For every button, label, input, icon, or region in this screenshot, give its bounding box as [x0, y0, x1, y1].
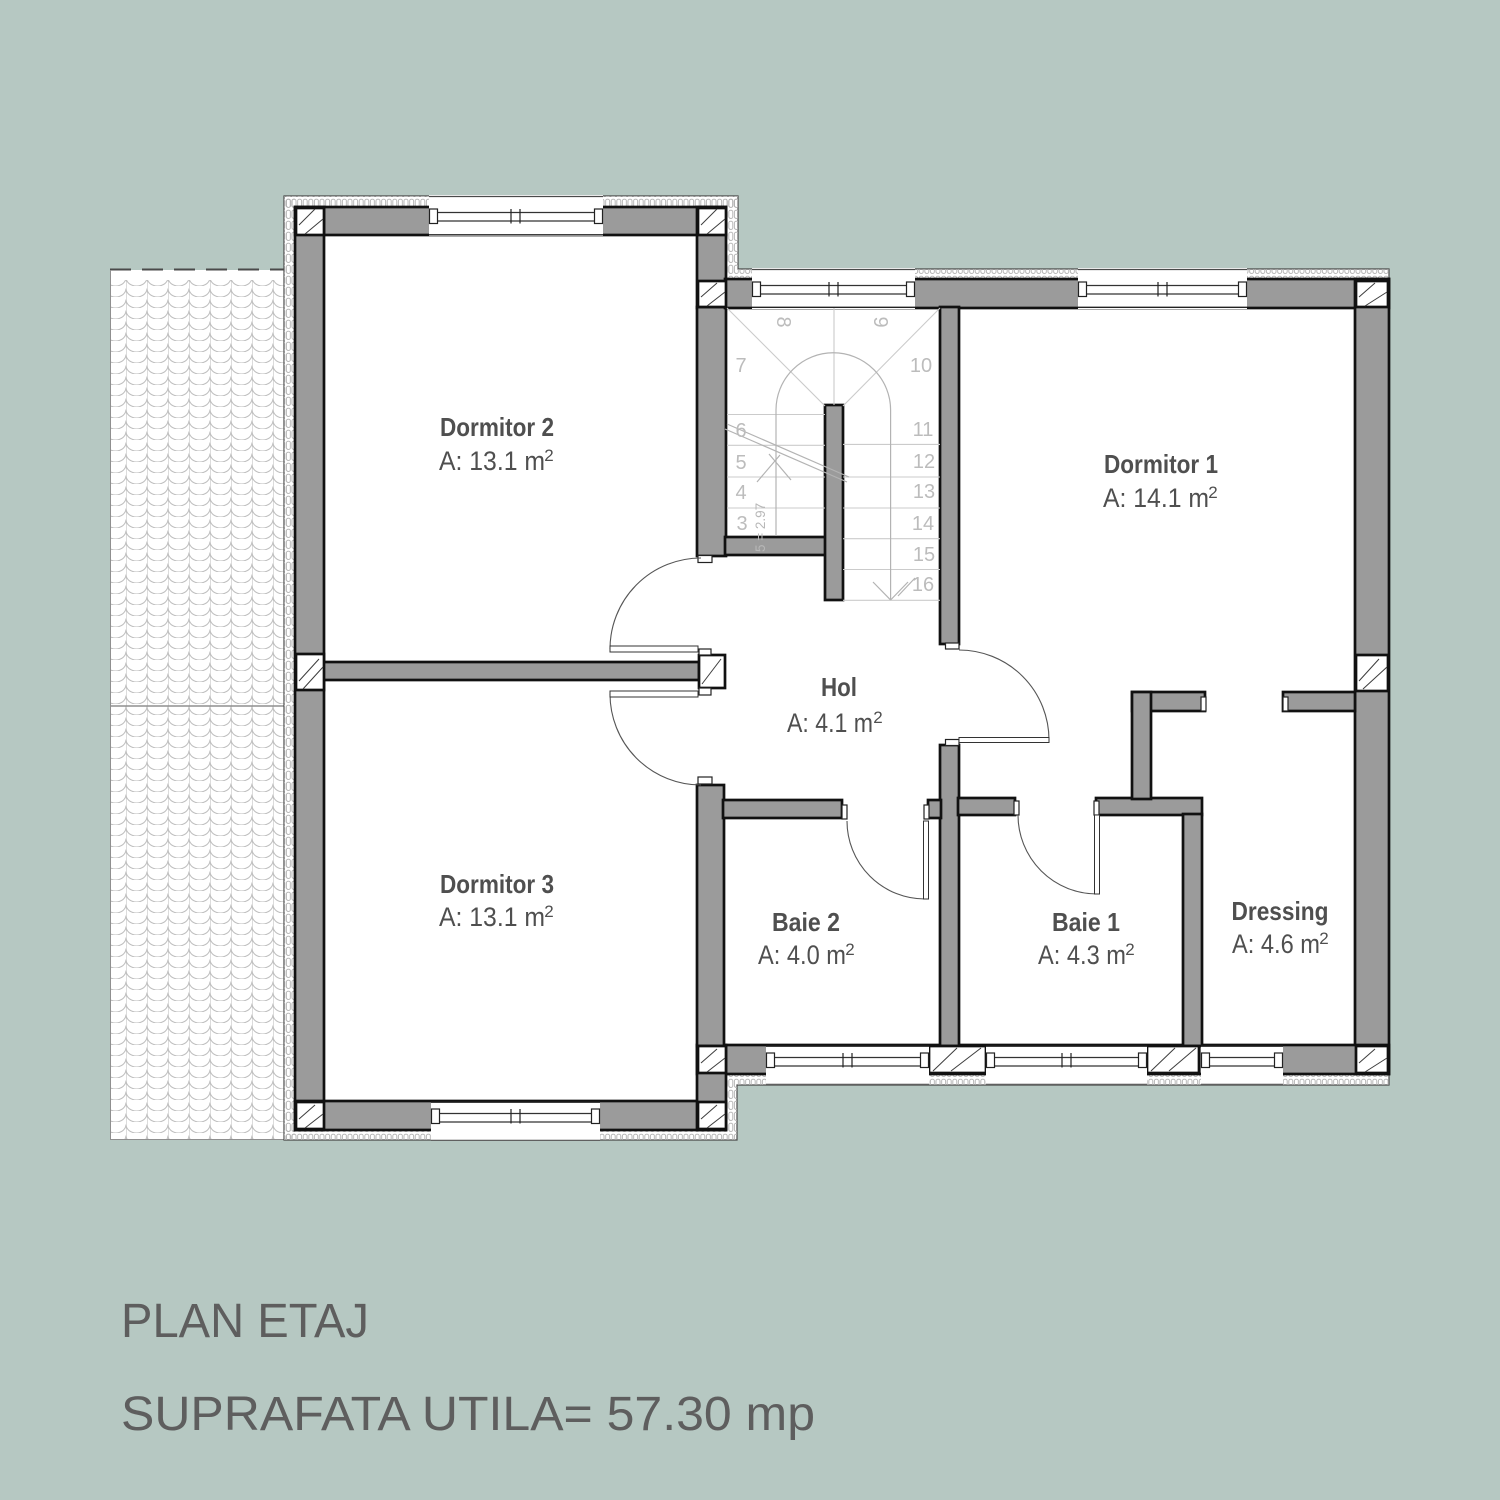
svg-text:Dormitor 3: Dormitor 3: [440, 869, 554, 899]
svg-text:Baie 1: Baie 1: [1052, 907, 1120, 937]
svg-text:13: 13: [913, 481, 935, 503]
svg-text:7: 7: [735, 355, 746, 377]
svg-text:2: 2: [544, 902, 553, 921]
svg-text:16: 16: [912, 574, 934, 596]
svg-text:11: 11: [913, 419, 934, 441]
svg-text:Dressing: Dressing: [1232, 896, 1329, 926]
svg-text:Baie 2: Baie 2: [772, 907, 840, 937]
svg-text:A: 4.0 m: A: 4.0 m: [758, 940, 846, 970]
svg-text:12: 12: [913, 451, 935, 473]
svg-text:2: 2: [873, 708, 882, 727]
svg-text:2: 2: [1208, 483, 1217, 502]
svg-text:A: 14.1 m: A: 14.1 m: [1103, 483, 1209, 513]
svg-text:15: 15: [913, 544, 935, 566]
svg-text:4: 4: [735, 482, 746, 504]
svg-text:SUPRAFATA UTILA= 57.30 mp: SUPRAFATA UTILA= 57.30 mp: [121, 1388, 815, 1441]
svg-text:Hol: Hol: [821, 672, 857, 702]
svg-text:A: 4.1 m: A: 4.1 m: [787, 708, 873, 738]
svg-text:10: 10: [910, 355, 932, 377]
svg-text:14: 14: [912, 513, 934, 535]
svg-text:9: 9: [869, 316, 891, 327]
svg-text:2: 2: [1125, 940, 1134, 959]
svg-text:3: 3: [736, 513, 747, 535]
svg-text:A: 4.3 m: A: 4.3 m: [1038, 940, 1126, 970]
svg-text:2: 2: [1319, 929, 1328, 948]
svg-text:A: 13.1 m: A: 13.1 m: [439, 902, 545, 932]
svg-text:2: 2: [544, 446, 553, 465]
svg-text:2: 2: [845, 940, 854, 959]
svg-text:5 = 2.97: 5 = 2.97: [753, 503, 768, 552]
svg-text:Dormitor 1: Dormitor 1: [1104, 449, 1218, 479]
svg-text:PLAN ETAJ: PLAN ETAJ: [121, 1295, 369, 1348]
svg-text:A: 4.6 m: A: 4.6 m: [1232, 929, 1320, 959]
svg-text:6: 6: [735, 420, 746, 442]
svg-text:Dormitor 2: Dormitor 2: [440, 412, 554, 442]
svg-text:5: 5: [735, 452, 746, 474]
svg-text:A: 13.1 m: A: 13.1 m: [439, 446, 545, 476]
svg-text:8: 8: [772, 316, 794, 327]
